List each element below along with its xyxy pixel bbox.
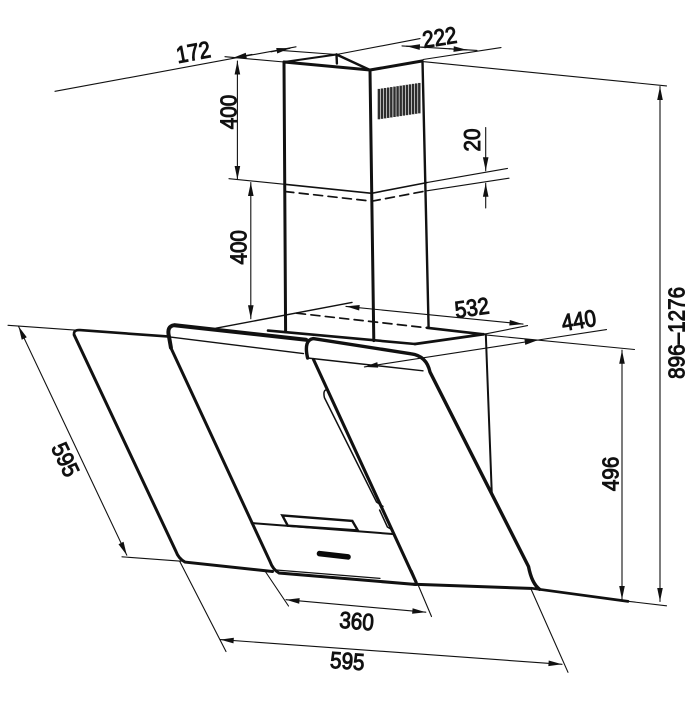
svg-text:400: 400 xyxy=(215,95,241,130)
svg-text:20: 20 xyxy=(459,129,485,152)
svg-text:400: 400 xyxy=(226,230,252,264)
svg-text:896–1276: 896–1276 xyxy=(663,287,689,379)
svg-text:222: 222 xyxy=(421,22,459,53)
svg-text:532: 532 xyxy=(453,293,491,324)
svg-text:496: 496 xyxy=(598,457,624,492)
svg-text:360: 360 xyxy=(338,607,374,636)
svg-text:595: 595 xyxy=(46,439,84,481)
svg-text:440: 440 xyxy=(560,305,598,336)
svg-text:595: 595 xyxy=(329,647,365,675)
